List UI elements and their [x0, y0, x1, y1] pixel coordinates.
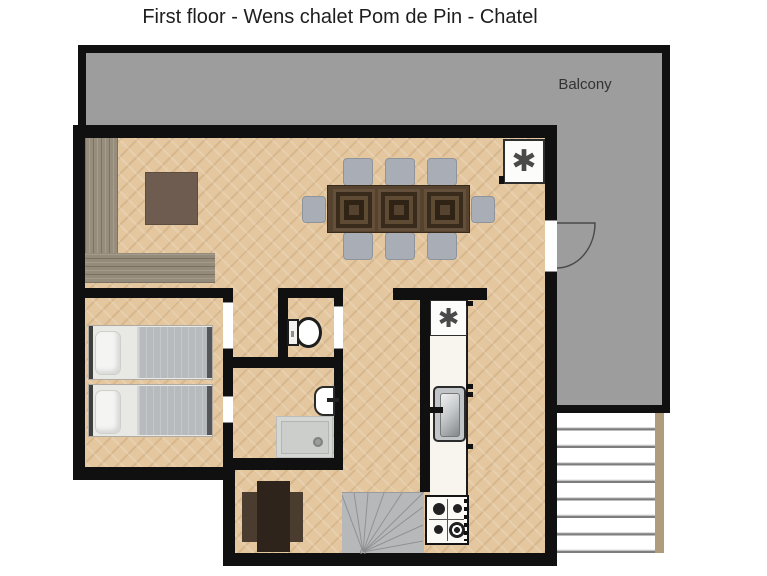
toilet-tank — [287, 319, 299, 346]
wall-shower-bottom — [223, 458, 343, 470]
wall-top — [73, 125, 557, 138]
toilet-bowl — [295, 317, 322, 348]
bed-footboard — [207, 327, 212, 378]
wall-bedroom-right-a — [223, 288, 233, 302]
freezer: ✱ — [430, 300, 467, 336]
toilet-flush-button — [291, 331, 294, 337]
stove-grid-h — [429, 519, 464, 520]
stove-burner — [449, 522, 465, 538]
exterior-stairs-stringer — [655, 413, 664, 553]
kitchen-sink — [433, 386, 466, 442]
bedroom-door-opening — [223, 302, 233, 349]
dining-chair — [343, 158, 373, 186]
shower-drain — [313, 437, 323, 447]
wall-kitchen-left — [420, 298, 430, 492]
wall-lower-left — [223, 470, 235, 566]
exterior-stairs — [557, 413, 655, 553]
bed-blanket — [137, 327, 207, 378]
stove-grid-v — [447, 499, 448, 541]
stove — [425, 495, 469, 545]
shower-tray — [276, 416, 333, 458]
stair-treads — [342, 493, 424, 554]
wall-right-upper — [545, 138, 557, 220]
stove-burner — [453, 504, 462, 513]
dining-chair — [427, 158, 457, 186]
dining-chair — [471, 196, 495, 223]
bed-blanket — [137, 386, 207, 435]
cabinet-handle — [466, 392, 473, 397]
stove-burner — [433, 503, 445, 515]
bed-1 — [88, 325, 213, 380]
dining-table — [327, 185, 470, 233]
dining-chair — [385, 232, 415, 260]
table-panel — [424, 189, 466, 231]
bed-headboard — [89, 385, 93, 436]
asterisk-icon: ✱ — [511, 147, 536, 177]
kitchen-faucet-handle — [424, 402, 429, 417]
shower-tray-inner — [281, 421, 329, 454]
wood-stove-handle — [499, 176, 504, 184]
floor-plan: First floor - Wens chalet Pom de Pin - C… — [0, 0, 767, 576]
bed-footboard — [207, 386, 212, 435]
oven-door-edge — [464, 499, 467, 541]
coffee-table — [145, 172, 198, 225]
dining-chair — [302, 196, 326, 223]
cabinet-handle — [466, 384, 473, 389]
bed-pillow — [95, 390, 121, 434]
nook-chair — [289, 492, 303, 542]
wall-shower-right — [334, 368, 343, 470]
wall-kitchen-top — [393, 288, 487, 300]
cabinet-handle — [466, 444, 473, 449]
bed-headboard — [89, 326, 93, 379]
table-panel — [378, 189, 420, 231]
stove-burner — [434, 525, 443, 534]
nook-chair — [242, 492, 258, 542]
cabinet-handle — [466, 301, 473, 306]
kitchen-sink-basin — [440, 393, 460, 437]
balcony-door-swing — [556, 218, 604, 276]
sofa-bottom — [85, 253, 215, 283]
wall-right-lower — [545, 272, 557, 566]
wall-wc-right-a — [334, 288, 343, 306]
interior-stairs — [342, 492, 424, 553]
dining-chair — [343, 232, 373, 260]
bed-pillow — [95, 331, 121, 375]
nook-table — [257, 481, 290, 552]
wall-shower-top — [223, 357, 343, 368]
dining-chair — [385, 158, 415, 186]
balcony-label: Balcony — [525, 76, 645, 93]
table-panel — [333, 189, 375, 231]
asterisk-icon: ✱ — [438, 305, 460, 331]
wc-door-opening — [334, 306, 343, 349]
wood-stove: ✱ — [503, 139, 545, 184]
wall-bedroom-top — [73, 288, 233, 298]
wall-bedroom-bottom — [73, 467, 235, 480]
bathroom-sink-faucet — [327, 398, 339, 402]
dining-chair — [427, 232, 457, 260]
bedroom-shower-door-opening — [223, 396, 233, 423]
bed-2 — [88, 384, 213, 437]
page-title: First floor - Wens chalet Pom de Pin - C… — [40, 6, 640, 29]
wall-left — [73, 125, 85, 480]
wall-bottom — [223, 553, 557, 566]
